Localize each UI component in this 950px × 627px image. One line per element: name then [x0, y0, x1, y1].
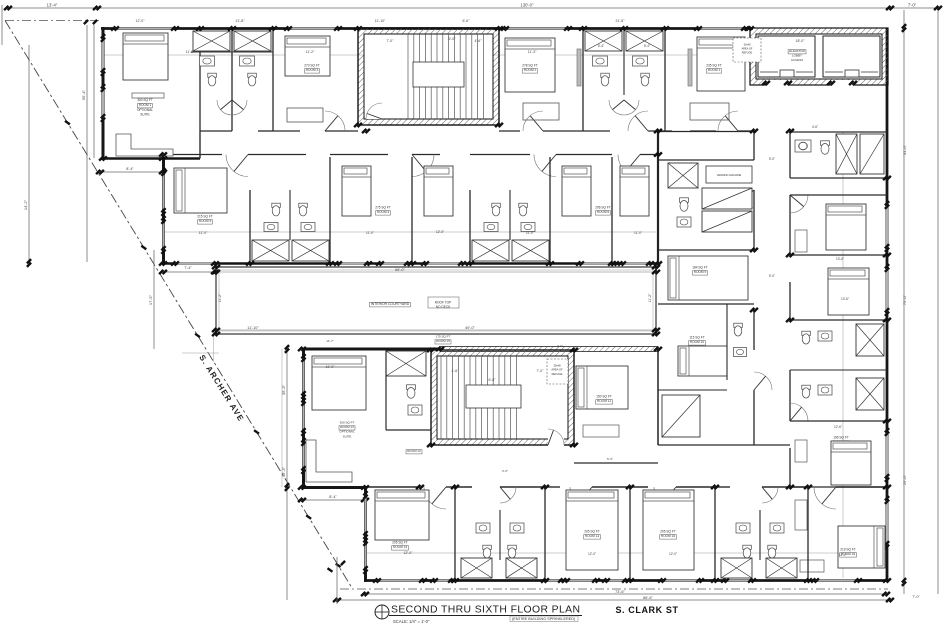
svg-text:ROOM 13: ROOM 13 [585, 534, 600, 538]
svg-text:30x48: 30x48 [744, 44, 751, 47]
svg-text:7'-0": 7'-0" [908, 3, 917, 8]
svg-text:ROOM 10: ROOM 10 [690, 340, 705, 344]
svg-text:ELEVATOR: ELEVATOR [789, 49, 805, 53]
svg-text:SCALE: 1/4" = 1'-0": SCALE: 1/4" = 1'-0" [393, 619, 430, 624]
svg-text:66'-0": 66'-0" [395, 268, 405, 272]
svg-text:175 SQ FT: 175 SQ FT [436, 335, 451, 339]
svg-text:11'-2": 11'-2" [218, 293, 222, 302]
svg-text:300 SQ FT: 300 SQ FT [340, 421, 355, 425]
svg-text:SECOND THRU SIXTH FLOOR PL: SECOND THRU SIXTH FLOOR PLAN [391, 605, 580, 616]
svg-text:5'-0": 5'-0" [607, 457, 613, 461]
svg-text:205 SQ FT: 205 SQ FT [392, 540, 408, 544]
svg-text:278 SQ FT: 278 SQ FT [522, 63, 538, 67]
svg-text:5'-0": 5'-0" [769, 274, 775, 278]
svg-text:13'-6": 13'-6" [836, 257, 844, 261]
svg-text:184 SQ FT: 184 SQ FT [692, 265, 708, 269]
svg-text:6'-0": 6'-0" [449, 37, 457, 41]
svg-text:ROOM 3: ROOM 3 [306, 68, 319, 72]
svg-text:12'-0": 12'-0" [136, 19, 146, 23]
svg-text:11'-2": 11'-2" [186, 50, 195, 54]
svg-text:12'-0": 12'-0" [404, 551, 414, 555]
svg-text:205 SQ FT: 205 SQ FT [584, 529, 600, 533]
svg-text:AREA OF: AREA OF [742, 48, 753, 51]
svg-text:11'-0": 11'-0" [634, 231, 642, 235]
svg-text:4'-6": 4'-6" [475, 39, 483, 43]
svg-text:205 SQ FT: 205 SQ FT [660, 529, 676, 533]
svg-text:3'-6": 3'-6" [502, 469, 508, 473]
svg-text:LOBBY: LOBBY [792, 54, 802, 58]
svg-text:OPTIONAL: OPTIONAL [339, 430, 355, 434]
svg-text:REFUGE: REFUGE [552, 372, 563, 376]
svg-text:31'-0": 31'-0" [902, 144, 907, 155]
svg-text:11'-2": 11'-2" [648, 293, 652, 302]
svg-text:12'-0": 12'-0" [436, 230, 444, 234]
svg-text:12'-0": 12'-0" [669, 552, 677, 556]
svg-text:NO DECK: NO DECK [436, 305, 451, 309]
svg-text:11'-3": 11'-3" [528, 50, 537, 54]
svg-text:300 SQ FT: 300 SQ FT [137, 98, 153, 102]
svg-text:8'-4": 8'-4" [329, 495, 337, 499]
svg-text:ACCESS: ACCESS [791, 58, 803, 62]
svg-text:ROOM 13: ROOM 13 [340, 425, 354, 429]
svg-text:7'-0": 7'-0" [912, 595, 920, 599]
svg-text:235 SQ FT: 235 SQ FT [706, 63, 722, 67]
svg-text:11'-2": 11'-2" [839, 553, 847, 557]
svg-text:ROOM 4: ROOM 4 [377, 210, 390, 214]
svg-text:5'-4": 5'-4" [598, 44, 604, 48]
svg-text:35'-3": 35'-3" [281, 384, 286, 395]
svg-text:196 SQ FT: 196 SQ FT [833, 435, 849, 439]
svg-text:296 SQ FT: 296 SQ FT [595, 205, 611, 209]
svg-text:115 SQ FT: 115 SQ FT [689, 335, 704, 339]
svg-text:215 SQ FT: 215 SQ FT [197, 214, 213, 218]
svg-text:7'-4": 7'-4" [184, 266, 192, 270]
svg-text:15'-3": 15'-3" [281, 466, 286, 477]
svg-text:12'-6": 12'-6" [834, 425, 842, 429]
svg-text:219 SQ FT: 219 SQ FT [840, 547, 856, 551]
svg-text:17'-5": 17'-5" [148, 294, 153, 305]
svg-text:SUITE: SUITE [140, 113, 149, 117]
svg-text:21'-8": 21'-8" [236, 19, 246, 23]
svg-text:7'-0": 7'-0" [387, 39, 395, 43]
svg-text:11'-0": 11'-0" [366, 231, 374, 235]
svg-text:11'-0": 11'-0" [199, 231, 208, 235]
svg-text:ROOM 1: ROOM 1 [708, 68, 721, 72]
svg-text:VENDING MACHINE: VENDING MACHINE [717, 173, 742, 177]
svg-text:ROOM 1: ROOM 1 [139, 103, 152, 107]
svg-text:49'-0": 49'-0" [465, 326, 475, 330]
svg-text:95'-4": 95'-4" [81, 89, 86, 100]
svg-text:ROOM 12: ROOM 12 [407, 449, 421, 453]
svg-text:S. CLARK ST: S. CLARK ST [615, 605, 678, 615]
svg-text:REFUGE: REFUGE [742, 52, 753, 55]
svg-text:SUITE: SUITE [343, 434, 352, 438]
svg-text:25'-0": 25'-0" [902, 474, 907, 485]
svg-text:14'-2": 14'-2" [23, 199, 28, 210]
svg-text:30x48: 30x48 [553, 363, 561, 367]
svg-text:150 SQ FT: 150 SQ FT [596, 394, 612, 398]
svg-text:ROOM 15: ROOM 15 [436, 339, 450, 343]
svg-text:13'-4": 13'-4" [47, 3, 58, 8]
svg-text:5'-0": 5'-0" [769, 157, 775, 161]
svg-text:OPTIONAL: OPTIONAL [137, 108, 153, 112]
svg-text:73'-6": 73'-6" [615, 590, 625, 594]
svg-text:8'-4": 8'-4" [126, 167, 134, 171]
svg-text:ROOM 6: ROOM 6 [597, 210, 610, 214]
svg-text:INTERIOR COURTYARD: INTERIOR COURTYARD [371, 302, 410, 306]
svg-text:5'-4": 5'-4" [644, 44, 650, 48]
svg-text:ROOM 2: ROOM 2 [524, 68, 537, 72]
svg-text:(ENTIRE BUILDING SPRINKLERED): (ENTIRE BUILDING SPRINKLERED) [512, 617, 576, 621]
svg-text:75'-0": 75'-0" [902, 294, 907, 305]
svg-text:6'-0": 6'-0" [489, 378, 497, 382]
svg-text:21'-8": 21'-8" [616, 19, 626, 23]
svg-text:11'-10": 11'-10" [247, 326, 259, 330]
svg-text:2'-6": 2'-6" [557, 344, 563, 348]
svg-text:ROOM 9: ROOM 9 [694, 270, 707, 274]
svg-text:11'-7": 11'-7" [326, 339, 333, 343]
svg-text:11'-10": 11'-10" [375, 19, 386, 23]
svg-text:18'-0": 18'-0" [796, 39, 806, 43]
svg-text:130'-0": 130'-0" [521, 3, 535, 8]
svg-text:ROOF TOP: ROOF TOP [435, 300, 452, 304]
svg-text:11'-0": 11'-0" [326, 365, 335, 369]
svg-text:ROOM 15: ROOM 15 [661, 534, 676, 538]
svg-text:11'-2": 11'-2" [306, 50, 315, 54]
svg-text:6'-6": 6'-6" [463, 19, 471, 23]
svg-text:273 SQ FT: 273 SQ FT [304, 63, 320, 67]
svg-text:13'-6": 13'-6" [841, 297, 849, 301]
svg-text:12'-0": 12'-0" [588, 552, 596, 556]
svg-text:86'-6": 86'-6" [643, 596, 653, 600]
svg-text:ROOM 5: ROOM 5 [199, 219, 212, 223]
svg-text:AREA OF: AREA OF [551, 368, 563, 372]
svg-text:275 SQ FT: 275 SQ FT [375, 205, 391, 209]
svg-text:7'-0": 7'-0" [537, 369, 545, 373]
svg-text:4'-6": 4'-6" [452, 369, 460, 373]
svg-text:ROOM 11: ROOM 11 [597, 399, 611, 403]
svg-text:ROOM 14: ROOM 14 [393, 545, 408, 549]
svg-text:11'-0": 11'-0" [526, 231, 534, 235]
svg-text:4'-6": 4'-6" [812, 125, 818, 129]
